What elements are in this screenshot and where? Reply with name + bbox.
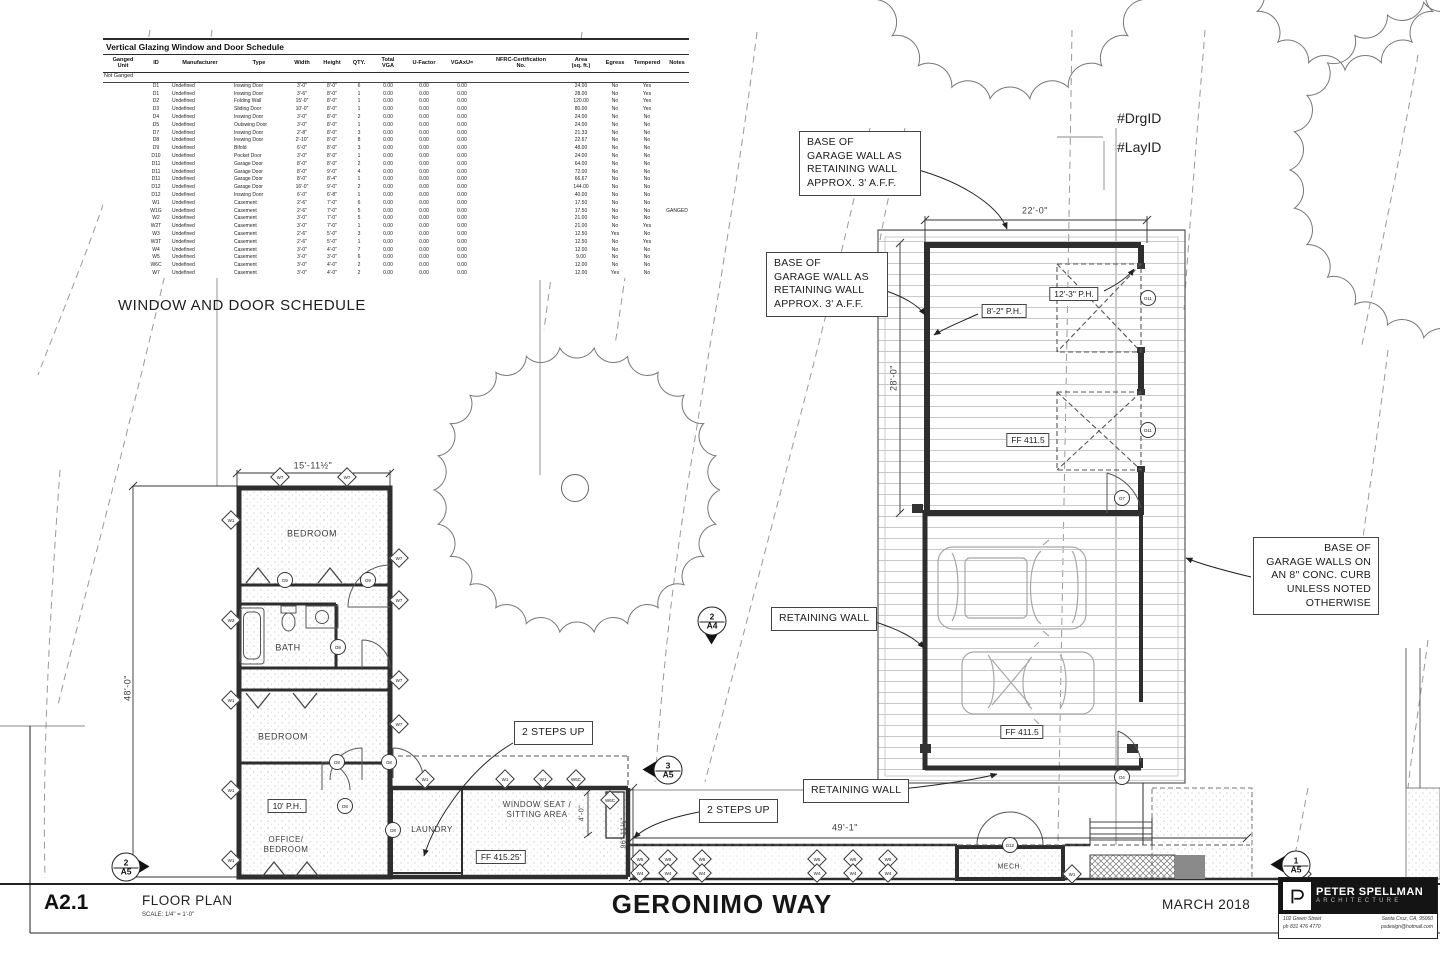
schedule-column-header: U-Factor: [405, 55, 443, 72]
schedule-caption: WINDOW AND DOOR SCHEDULE: [118, 297, 366, 314]
schedule-row: W1GUndefinedCasement2'-6"7'-0"50.000.000…: [103, 208, 689, 216]
callout-steps-up-1: 2 STEPS UP: [514, 721, 593, 745]
door-marker: D8: [330, 639, 346, 655]
tree-trunk: [562, 475, 589, 502]
callout-steps-up-2: 2 STEPS UP: [699, 799, 778, 823]
schedule-row: D12UndefinedGarage Door16'-0"9'-0"20.000…: [103, 184, 689, 192]
firm-phone: ph 831 476 4770: [1283, 924, 1321, 932]
plate-height-123-label: 12'-3" P.H.: [1049, 287, 1098, 301]
schedule-row: D11UndefinedGarage Door8'-0"9'-0"40.000.…: [103, 169, 689, 177]
schedule-column-header: ID: [143, 55, 169, 72]
schedule-column-header: NFRC-Certification No.: [481, 55, 561, 72]
schedule-column-header: Total VGA: [371, 55, 405, 72]
window-marker: W4: [633, 866, 647, 880]
project-title: GERONIMO WAY: [612, 889, 833, 920]
schedule-column-header: Area (sq. ft.): [561, 55, 601, 72]
callout-base-retaining-2: BASE OF GARAGE WALL AS RETAINING WALL AP…: [766, 252, 888, 317]
window-marker: W7: [273, 470, 287, 484]
layout-id-tag: #LayID: [1117, 139, 1161, 155]
schedule-column-header: Egress: [601, 55, 629, 72]
window-marker: W1: [418, 772, 432, 786]
section-marker: 2A5: [112, 853, 139, 880]
door-marker: D12: [1002, 837, 1018, 853]
schedule-row: D9UndefinedBifold6'-0"8'-0"30.000.000.00…: [103, 145, 689, 153]
door-marker: D7: [1114, 490, 1130, 506]
door-marker: D4: [1114, 769, 1130, 785]
schedule-body: Not Ganged D1UndefinedInswing Door3'-0"8…: [103, 72, 689, 277]
window-marker: W1: [498, 772, 512, 786]
firm-email: psdesign@hotmail.com: [1381, 924, 1433, 932]
dim-south-width: 49'-1": [832, 822, 858, 833]
schedule-column-header: Notes: [665, 55, 689, 72]
schedule-row: D5UndefinedOutswing Door3'-0"8'-0"10.000…: [103, 122, 689, 130]
window-marker: W4: [810, 866, 824, 880]
window-marker: W4: [881, 866, 895, 880]
schedule-row: D2UndefinedFolding Wall15'-0"8'-0"10.000…: [103, 98, 689, 106]
callout-retaining-wall-2: RETAINING WALL: [803, 779, 909, 803]
schedule-row: D1UndefinedInswing Door3'-6"8'-0"10.000.…: [103, 91, 689, 99]
finish-floor-garage-upper-label: FF 411.5: [1006, 433, 1049, 447]
drawing-id-tag: #DrgID: [1117, 110, 1161, 126]
architect-logo-icon: [1283, 882, 1311, 910]
room-label-window-seat: WINDOW SEAT / SITTING AREA: [503, 800, 571, 820]
door-marker: D8: [381, 754, 397, 770]
schedule-column-header: VGAxU=: [443, 55, 481, 72]
dim-east-height: 96'-11½": [621, 817, 630, 848]
schedule-column-header: Manufacturer: [169, 55, 231, 72]
schedule-column-header: Type: [231, 55, 287, 72]
window-marker: W1: [224, 783, 238, 797]
finish-floor-garage-label: FF 411.5: [1000, 725, 1043, 739]
room-label-bedroom1: BEDROOM: [287, 528, 337, 539]
schedule-row: D12UndefinedInswing Door6'-0"6'-8"10.000…: [103, 192, 689, 200]
schedule-column-header: Tempered: [629, 55, 665, 72]
room-label-bedroom2: BEDROOM: [258, 731, 308, 742]
logo-band: PETER SPELLMAN ARCHITECTURE: [1279, 878, 1437, 914]
door-marker: D8: [337, 798, 353, 814]
schedule-column-header: Ganged Unit: [103, 55, 143, 72]
schedule-row: D4UndefinedInswing Door3'-0"8'-0"20.000.…: [103, 114, 689, 122]
window-marker: W6C: [603, 793, 617, 807]
drawing-title: FLOOR PLAN: [142, 893, 233, 908]
window-marker: W1: [224, 513, 238, 527]
finish-floor-main-label: FF 415.25': [476, 850, 526, 864]
issue-date: MARCH 2018: [1162, 897, 1250, 912]
window-marker: W3: [224, 613, 238, 627]
schedule-group-row: Not Ganged: [103, 72, 689, 82]
door-marker: D9: [277, 572, 293, 588]
schedule-column-header: QTY.: [347, 55, 371, 72]
callout-conc-curb: BASE OF GARAGE WALLS ON AN 8" CONC. CURB…: [1253, 537, 1379, 615]
tree-canopy: [870, 0, 1150, 99]
floor-plan-sheet: Vertical Glazing Window and Door Schedul…: [0, 0, 1440, 960]
door-marker: D11: [1140, 290, 1156, 306]
plate-height-10-label: 10' P.H.: [268, 799, 307, 813]
dim-garage-width: 22'-0": [1022, 205, 1048, 216]
window-door-schedule: Vertical Glazing Window and Door Schedul…: [103, 38, 689, 278]
schedule-column-header: Width: [287, 55, 317, 72]
window-marker: W1: [224, 853, 238, 867]
schedule-row: W3UndefinedCasement2'-6"5'-0"30.000.000.…: [103, 231, 689, 239]
firm-street: 102 Green Street: [1283, 916, 1321, 924]
schedule-row: D11UndefinedGarage Door8'-0"8'-4"10.000.…: [103, 176, 689, 184]
section-marker: 2A4: [698, 607, 725, 634]
plate-height-82-label: 8'-2" P.H.: [982, 304, 1027, 318]
schedule-row: D10UndefinedPocket Door3'-0"8'-0"10.000.…: [103, 153, 689, 161]
tree-canopy: [1290, 0, 1440, 342]
schedule-row: D8UndefinedInswing Door2'-10"8'-0"80.000…: [103, 137, 689, 145]
callout-base-retaining-1: BASE OF GARAGE WALL AS RETAINING WALL AP…: [799, 131, 921, 196]
schedule-row: W1UndefinedCasement2'-6"7'-0"60.000.000.…: [103, 200, 689, 208]
firm-subtitle: ARCHITECTURE: [1316, 898, 1423, 905]
door-marker: D8: [385, 822, 401, 838]
schedule-title: Vertical Glazing Window and Door Schedul…: [103, 40, 689, 55]
firm-city: Santa Cruz, CA, 95060: [1381, 916, 1433, 924]
schedule-row: W3TUndefinedCasement2'-6"5'-0"10.000.000…: [103, 239, 689, 247]
schedule-row: D7UndefinedInswing Door2'-8"8'-0"30.000.…: [103, 130, 689, 138]
schedule-header-row: Ganged UnitIDManufacturerTypeWidthHeight…: [103, 55, 689, 72]
section-marker: 1A5: [1282, 851, 1309, 878]
callout-retaining-wall-1: RETAINING WALL: [771, 607, 877, 631]
schedule-row: W4UndefinedCasement3'-0"4'-0"70.000.000.…: [103, 247, 689, 255]
room-label-office: OFFICE/ BEDROOM: [264, 835, 309, 855]
window-marker: W7: [392, 551, 406, 565]
schedule-row: D3UndefinedSliding Door10'-0"8'-0"10.000…: [103, 106, 689, 114]
schedule-row: D11UndefinedGarage Door8'-0"8'-0"20.000.…: [103, 161, 689, 169]
room-label-bath: BATH: [275, 642, 300, 653]
dim-garage-depth: 28'-0": [888, 365, 899, 391]
window-marker: W1: [1065, 867, 1079, 881]
dim-plan-height: 48'-0": [122, 675, 133, 701]
door-marker: D8: [329, 754, 345, 770]
dim-plan-width: 15'-11½": [294, 460, 333, 471]
schedule-row: W2TUndefinedCasement3'-0"7'-0"10.000.000…: [103, 223, 689, 231]
window-marker: W7: [340, 470, 354, 484]
schedule-row: W2UndefinedCasement3'-0"7'-0"50.000.000.…: [103, 215, 689, 223]
window-marker: W7: [392, 673, 406, 687]
room-label-mech: MECH.: [997, 864, 1022, 873]
schedule-row: W5UndefinedCasement3'-0"3'-0"60.000.000.…: [103, 254, 689, 262]
door-marker: D9: [360, 572, 376, 588]
window-marker: W4: [661, 866, 675, 880]
window-marker: W7: [392, 717, 406, 731]
architect-logo-block: PETER SPELLMAN ARCHITECTURE 102 Green St…: [1278, 877, 1438, 939]
drawing-scale: SCALE: 1/4" = 1'-0": [142, 912, 194, 918]
dim-seat-depth: 4'-0": [579, 805, 588, 821]
firm-name: PETER SPELLMAN: [1316, 886, 1423, 898]
section-marker: 3A5: [654, 756, 681, 783]
schedule-row: W7UndefinedCasement3'-0"4'-0"20.000.000.…: [103, 270, 689, 278]
schedule-table: Ganged UnitIDManufacturerTypeWidthHeight…: [103, 55, 689, 278]
room-label-laundry: LAUNDRY: [411, 825, 453, 835]
window-marker: W7: [392, 593, 406, 607]
schedule-row: W6CUndefinedCasement3'-0"4'-0"20.000.000…: [103, 262, 689, 270]
tree-canopy: [1250, 0, 1440, 70]
schedule-row: D1UndefinedInswing Door3'-0"8'-0"60.000.…: [103, 82, 689, 90]
window-marker: W6C: [569, 772, 583, 786]
window-marker: W1: [536, 772, 550, 786]
window-marker: W4: [846, 866, 860, 880]
window-marker: W1: [224, 693, 238, 707]
tree-canopy: [434, 348, 720, 632]
sheet-number: A2.1: [44, 891, 88, 915]
window-marker: W4: [695, 866, 709, 880]
schedule-column-header: Height: [317, 55, 347, 72]
door-marker: D11: [1140, 422, 1156, 438]
firm-address: 102 Green Street ph 831 476 4770 Santa C…: [1279, 914, 1437, 933]
